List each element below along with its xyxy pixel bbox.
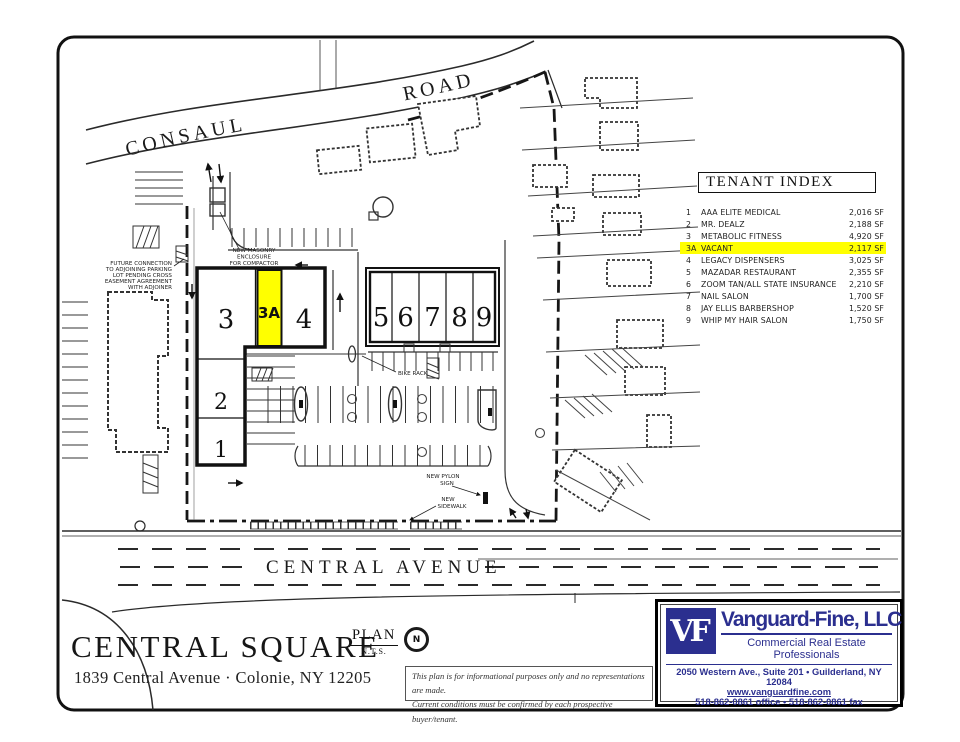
pylon-sign-note: SIGN xyxy=(440,481,454,487)
tenant-size: 2,117 SF xyxy=(838,244,886,253)
tenant-name: METABOLIC FITNESS xyxy=(701,232,838,241)
tenant-unit: 3 xyxy=(680,232,701,241)
tenant-unit: 5 xyxy=(680,268,701,277)
tenant-index-rows: 1AAA ELITE MEDICAL2,016 SF 2MR. DEALZ2,1… xyxy=(680,206,886,327)
lot-lines-right xyxy=(520,98,700,520)
tenant-unit: 2 xyxy=(680,220,701,229)
broker-address: 2050 Western Ave., Suite 201 • Guilderla… xyxy=(666,667,892,687)
tenant-row: 9WHIP MY HAIR SALON1,750 SF xyxy=(680,315,886,327)
unit-5-label: 5 xyxy=(373,303,390,333)
bike-rack-note: BIKE RACK xyxy=(398,371,428,377)
site-plan-sheet: CONSAUL ROAD xyxy=(0,0,960,742)
tenant-name: MAZADAR RESTAURANT xyxy=(701,268,838,277)
broker-card: VF Vanguard-Fine, LLC Commercial Real Es… xyxy=(655,599,903,707)
tenant-unit: 6 xyxy=(680,280,701,289)
plan-label: PLAN xyxy=(350,627,398,646)
tenant-size: 2,355 SF xyxy=(838,268,886,277)
unit-1-label: 1 xyxy=(214,438,228,463)
tenant-index-title-text: TENANT INDEX xyxy=(706,174,834,191)
broker-card-inner: VF Vanguard-Fine, LLC Commercial Real Es… xyxy=(660,604,898,702)
tenant-name: LEGACY DISPENSERS xyxy=(701,256,838,265)
unit-6-label: 6 xyxy=(397,303,414,333)
tenant-size: 4,920 SF xyxy=(838,232,886,241)
tree-symbols xyxy=(348,395,427,457)
tenant-index-title: TENANT INDEX xyxy=(698,172,876,193)
tenant-size: 1,750 SF xyxy=(838,316,886,325)
unit-3-label: 3 xyxy=(218,305,235,335)
disclaimer-box: This plan is for informational purposes … xyxy=(405,666,653,701)
tenant-size: 2,016 SF xyxy=(838,208,886,217)
tenant-name: WHIP MY HAIR SALON xyxy=(701,316,838,325)
tenant-row: 1AAA ELITE MEDICAL2,016 SF xyxy=(680,206,886,218)
tenant-row: 3METABOLIC FITNESS4,920 SF xyxy=(680,230,886,242)
tenant-size: 2,210 SF xyxy=(838,280,886,289)
crosswalks xyxy=(133,226,439,493)
pylon-sign-note: NEW PYLON xyxy=(426,474,459,480)
compactor-note: FOR COMPACTOR xyxy=(230,261,279,267)
small-shed xyxy=(369,212,378,220)
parking-islands xyxy=(295,387,497,430)
tenant-name: VACANT xyxy=(701,244,838,253)
unit-7-label: 7 xyxy=(424,303,441,333)
top-lot-lines xyxy=(320,40,336,90)
tenant-name: ZOOM TAN/ALL STATE INSURANCE xyxy=(701,280,838,289)
west-neighbor-building xyxy=(108,292,168,452)
vf-logo: VF xyxy=(666,608,716,654)
tenant-size: 1,700 SF xyxy=(838,292,886,301)
unit-9-label: 9 xyxy=(476,303,493,333)
central-avenue-label-2: AVENUE xyxy=(396,557,502,578)
tenant-unit: 3A xyxy=(680,244,701,253)
plan-scale-block: PLAN N.T.S. xyxy=(350,624,398,656)
broker-website: www.vanguardfine.com xyxy=(666,687,892,697)
light-poles xyxy=(299,400,492,416)
sidewalk-note: NEW xyxy=(441,497,455,503)
tenant-size: 3,025 SF xyxy=(838,256,886,265)
broker-phone: 518-862-0861 office • 518-862-0861 fax xyxy=(666,697,892,707)
building-b: 5 6 7 8 9 xyxy=(366,268,499,352)
tenant-unit: 8 xyxy=(680,304,701,313)
compactor-note: ENCLOSURE xyxy=(237,255,271,261)
north-arrow-icon: N xyxy=(404,627,429,652)
tenant-name: JAY ELLIS BARBERSHOP xyxy=(701,304,838,313)
tenant-row: 7NAIL SALON1,700 SF xyxy=(680,291,886,303)
tenant-name: MR. DEALZ xyxy=(701,220,838,229)
tenant-row-highlighted: 3AVACANT2,117 SF xyxy=(680,242,886,254)
compactor-enclosure xyxy=(210,188,225,216)
tank-circle xyxy=(373,197,393,217)
central-avenue-label-1: CENTRAL xyxy=(266,557,389,578)
tenant-row: 4LEGACY DISPENSERS3,025 SF xyxy=(680,254,886,266)
broker-name-block: Vanguard-Fine, LLC Commercial Real Estat… xyxy=(721,608,892,661)
future-connection-note: WITH ADJOINER xyxy=(128,285,172,291)
tenant-row: 5MAZADAR RESTAURANT2,355 SF xyxy=(680,266,886,278)
page-subtitle-address: 1839 Central Avenue · Colonie, NY 12205 xyxy=(74,668,371,688)
compactor-note: NEW MASONRY xyxy=(233,248,276,254)
consaul-road-label: CONSAUL xyxy=(123,113,248,161)
tree-symbol xyxy=(536,429,545,438)
broker-divider xyxy=(666,664,892,665)
plan-scale-label: N.T.S. xyxy=(350,647,398,656)
tenant-index: TENANT INDEX 1AAA ELITE MEDICAL2,016 SF … xyxy=(680,172,886,327)
broker-tagline: Commercial Real Estate Professionals xyxy=(721,637,892,661)
tenant-unit: 9 xyxy=(680,316,701,325)
pylon-sign-symbol xyxy=(483,492,488,504)
tenant-row: 8JAY ELLIS BARBERSHOP1,520 SF xyxy=(680,303,886,315)
tenant-size: 2,188 SF xyxy=(838,220,886,229)
unit-2-label: 2 xyxy=(214,390,228,415)
unit-3a-label: 3A xyxy=(258,304,280,322)
page-title: CENTRAL SQUARE xyxy=(71,629,380,665)
unit-8-label: 8 xyxy=(451,303,468,333)
tenant-unit: 7 xyxy=(680,292,701,301)
unit-4-label: 4 xyxy=(296,305,313,335)
disclaimer-line: This plan is for informational purposes … xyxy=(412,669,646,697)
broker-header: VF Vanguard-Fine, LLC Commercial Real Es… xyxy=(666,608,892,661)
tenant-unit: 4 xyxy=(680,256,701,265)
sidewalk-note: SIDEWALK xyxy=(438,504,467,510)
tenant-name: AAA ELITE MEDICAL xyxy=(701,208,838,217)
tenant-row: 6ZOOM TAN/ALL STATE INSURANCE2,210 SF xyxy=(680,279,886,291)
tenant-size: 1,520 SF xyxy=(838,304,886,313)
tenant-name: NAIL SALON xyxy=(701,292,838,301)
broker-name: Vanguard-Fine, LLC xyxy=(721,608,892,632)
tenant-row: 2MR. DEALZ2,188 SF xyxy=(680,218,886,230)
tenant-unit: 1 xyxy=(680,208,701,217)
disclaimer-line: Current conditions must be confirmed by … xyxy=(412,697,646,725)
broker-rule xyxy=(721,633,892,635)
